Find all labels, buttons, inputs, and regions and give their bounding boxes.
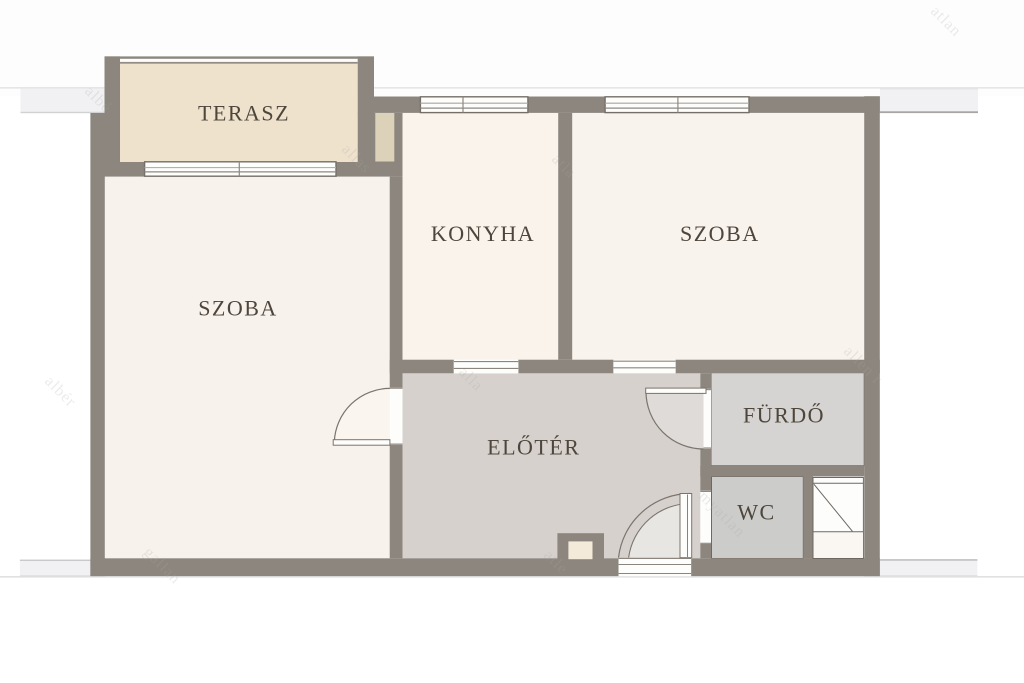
- svg-text:SZOBA: SZOBA: [680, 221, 760, 246]
- svg-text:TERASZ: TERASZ: [198, 101, 290, 126]
- svg-text:SZOBA: SZOBA: [198, 295, 278, 320]
- svg-text:KONYHA: KONYHA: [431, 221, 535, 246]
- svg-text:WC: WC: [737, 500, 775, 525]
- svg-text:FÜRDŐ: FÜRDŐ: [743, 403, 825, 428]
- svg-text:ELŐTÉR: ELŐTÉR: [487, 434, 580, 459]
